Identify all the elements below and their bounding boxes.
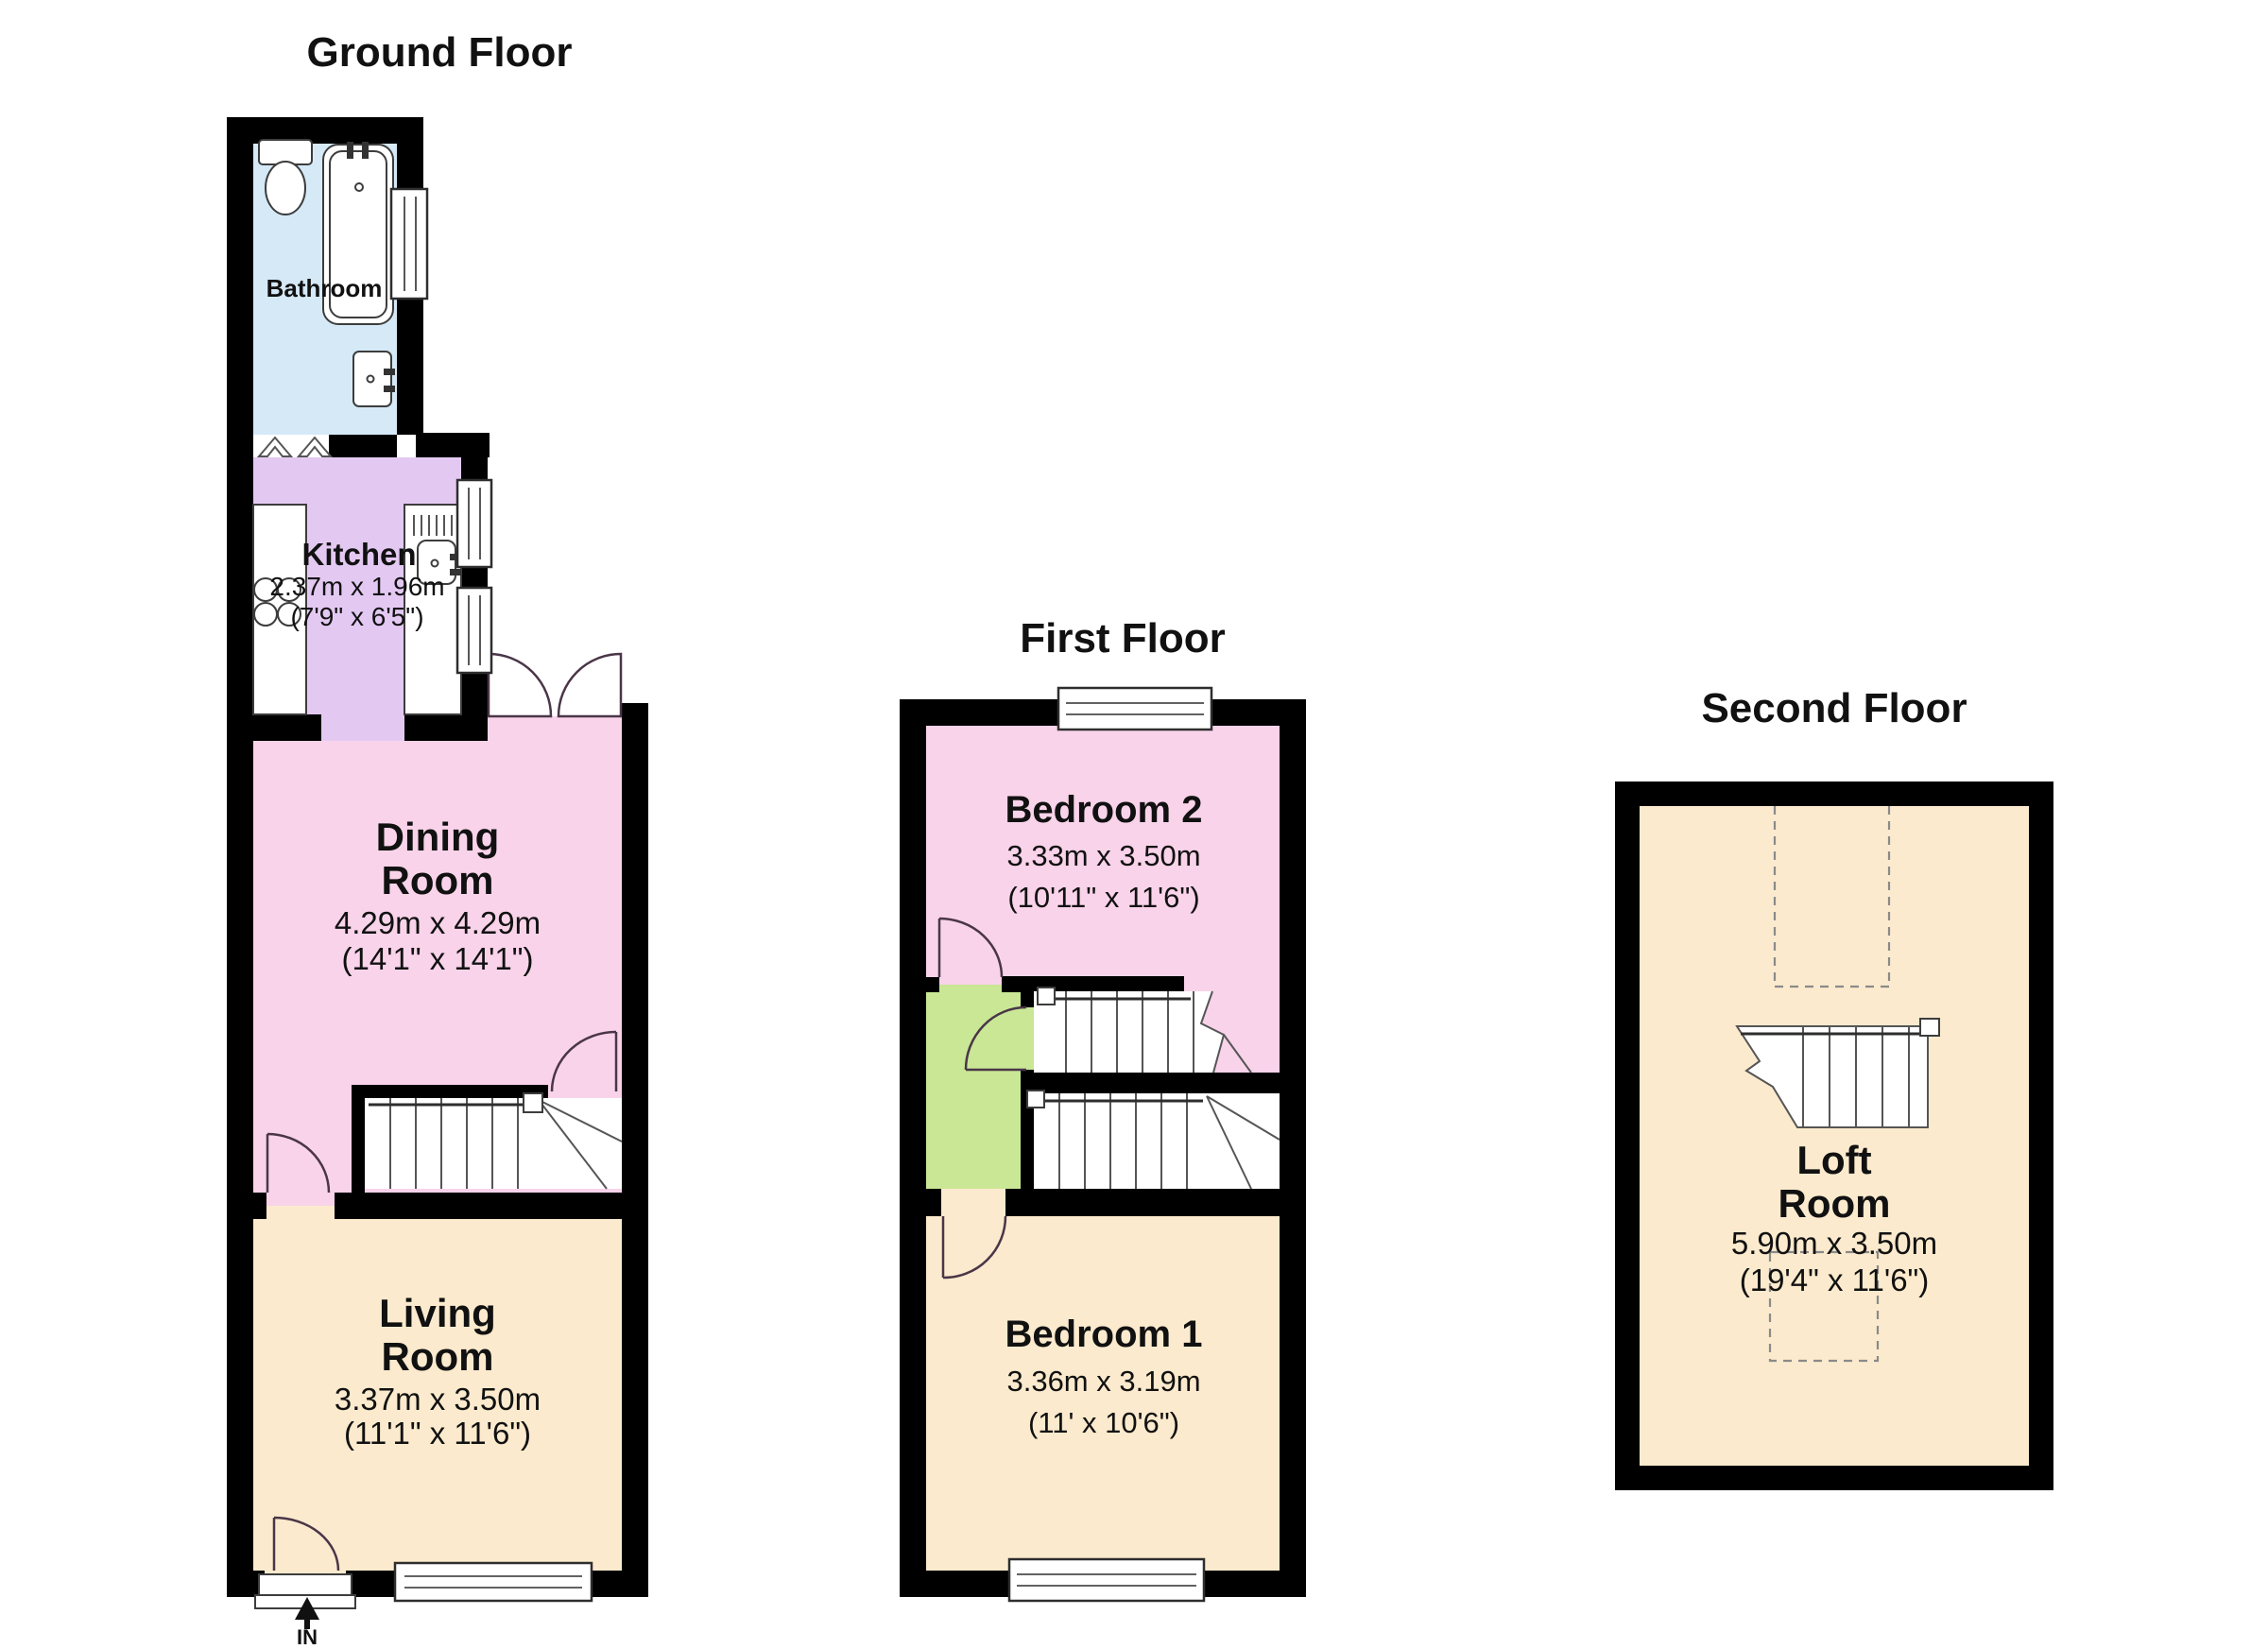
entrance-label: IN: [297, 1625, 318, 1649]
bedroom2-doorway-lower: [939, 985, 1002, 992]
bathroom-label: Bathroom: [266, 274, 383, 302]
first-floor-title: First Floor: [1020, 615, 1226, 661]
wall-stairs-top: [352, 1085, 548, 1098]
dining-label-1: Dining: [376, 815, 500, 859]
kitchen-label: Kitchen: [301, 537, 416, 572]
landing-floor: [926, 992, 1021, 1189]
lower-staircase: [1027, 1091, 1280, 1189]
stair-flight-upper: [1034, 991, 1224, 1073]
ground-floor-title: Ground Floor: [306, 29, 572, 76]
newel-post: [1027, 1091, 1044, 1108]
wall-ground-right: [622, 703, 648, 1597]
loft-dim-imperial: (19'4" x 11'6"): [1740, 1263, 1930, 1297]
bedroom2-label: Bedroom 2: [1005, 789, 1203, 831]
french-door-left: [489, 654, 551, 716]
kitchen-dim-imperial: (7'9" x 6'5"): [290, 602, 423, 631]
toilet-bowl: [266, 162, 305, 215]
wall-kitchen-bottom-left: [227, 714, 321, 741]
dining-living-doorway-upper: [266, 1193, 335, 1206]
hob-ring: [254, 603, 277, 626]
living-window: [395, 1563, 592, 1601]
living-label-2: Room: [382, 1334, 494, 1379]
kitchen-sink-drain: [432, 560, 438, 567]
entrance: IN: [255, 1574, 355, 1649]
wall-bedroom1-top: [1005, 1189, 1280, 1216]
bathroom-window: [391, 189, 427, 299]
wall-bathroom-top: [227, 117, 423, 144]
wall-kitchen-bottom-right: [404, 714, 488, 741]
newel-post: [1920, 1019, 1939, 1036]
kitchen-dining-opening: [321, 714, 404, 741]
wall-ground-left: [227, 117, 253, 1597]
dining-living-doorway-lower: [266, 1206, 335, 1219]
french-door-threshold: [488, 716, 622, 741]
wall-kitchen-right: [461, 433, 488, 720]
newel-post: [1038, 988, 1055, 1005]
wall-between-flights: [1021, 1073, 1280, 1093]
bedroom1-doorway-gap: [941, 1189, 1005, 1216]
bedroom1-label: Bedroom 1: [1005, 1314, 1203, 1355]
bedroom1-dim-imperial: (11' x 10'6"): [1028, 1406, 1179, 1439]
bedroom1-window: [1009, 1559, 1204, 1601]
kitchen-window-2: [457, 588, 491, 673]
kitchen-window-1: [457, 480, 491, 567]
loft-label-2: Room: [1778, 1181, 1891, 1226]
bedroom2-dim-imperial: (10'11" x 11'6"): [1007, 881, 1199, 914]
sink-drain: [368, 376, 374, 383]
entry-threshold: [259, 1574, 352, 1595]
wall-landing-stairs-upper: [1021, 991, 1034, 1007]
bedroom2-window: [1058, 688, 1211, 730]
dining-dim-imperial: (14'1" x 14'1"): [342, 941, 534, 976]
bedroom2-doorway-upper: [939, 977, 1002, 985]
french-doors: [489, 654, 621, 716]
wall-dining-living-right: [335, 1193, 622, 1219]
dining-label-2: Room: [382, 858, 494, 902]
wall-stairwell-top: [1002, 976, 1184, 992]
sink-tap: [384, 386, 395, 392]
living-dim-metric: 3.37m x 3.50m: [335, 1382, 541, 1417]
living-label-1: Living: [379, 1291, 496, 1335]
bifold-door-strip: [253, 435, 329, 457]
second-floor-title: Second Floor: [1701, 685, 1967, 731]
bathtub-drain: [355, 183, 363, 191]
floorplan-canvas: Ground Floor: [0, 0, 2268, 1649]
loft-floor: [1640, 806, 2029, 1466]
kitchen-tap: [450, 569, 461, 575]
bedroom1-dim-metric: 3.36m x 3.19m: [1006, 1365, 1200, 1398]
sink-tap: [384, 369, 395, 375]
ground-staircase: [365, 1093, 622, 1189]
bathtub-tap: [362, 142, 369, 159]
kitchen-dim-metric: 2.37m x 1.96m: [269, 572, 444, 601]
wall-dining-living-left: [227, 1193, 266, 1219]
second-floor-plan: Second Floor Loft Room 5.90m x 3.50m (19…: [1615, 685, 2053, 1490]
stairs-doorway-gap: [548, 1085, 622, 1098]
floorplan-page: Ground Floor: [0, 0, 2268, 1649]
dining-dim-metric: 4.29m x 4.29m: [335, 905, 541, 940]
stair-flight-lower: [1034, 1093, 1280, 1189]
wall-bathroom-kitchen-divider: [329, 435, 397, 457]
wall-stairs-left-cap: [352, 1085, 365, 1193]
ground-floor-plan: Ground Floor: [227, 29, 648, 1649]
first-floor-plan: First Floor: [900, 615, 1306, 1601]
loft-dim-metric: 5.90m x 3.50m: [1731, 1226, 1937, 1261]
bedroom2-dim-metric: 3.33m x 3.50m: [1006, 839, 1200, 872]
newel-post: [524, 1093, 542, 1112]
loft-label-1: Loft: [1796, 1138, 1871, 1182]
french-door-right: [558, 654, 621, 716]
living-dim-imperial: (11'1" x 11'6"): [344, 1416, 531, 1451]
wall-bedroom1-left-stub: [926, 1189, 941, 1216]
wall-bedroom2-landing-left: [926, 977, 939, 992]
bathtub-tap: [347, 142, 353, 159]
stairs-doorway-gap-ff: [1021, 1007, 1034, 1070]
